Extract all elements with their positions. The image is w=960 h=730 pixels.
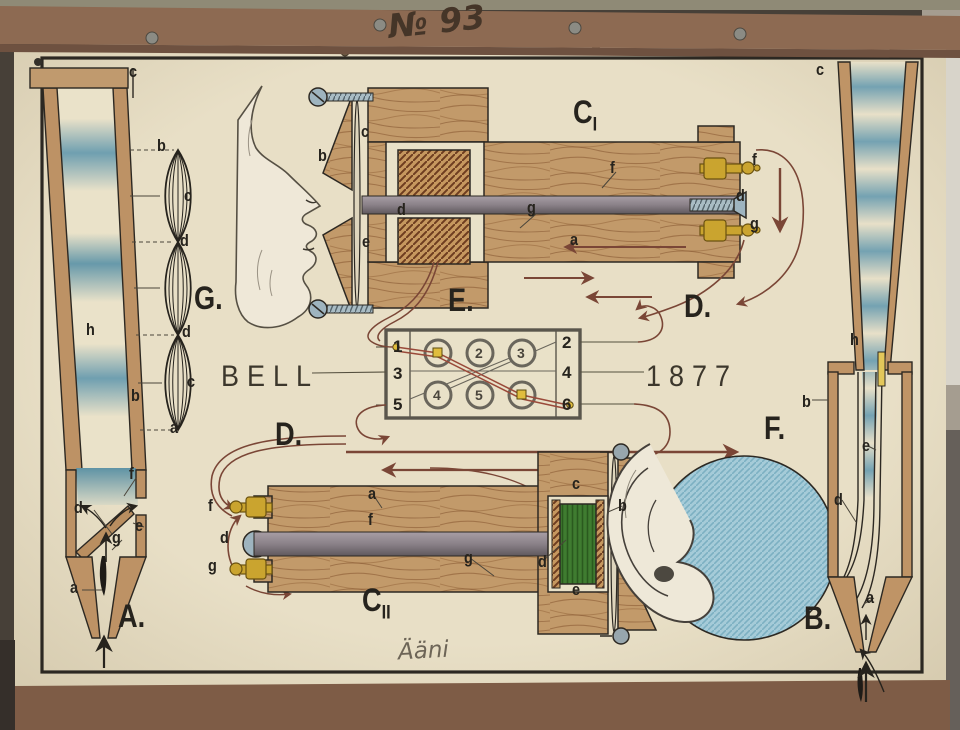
label-c1-g-wood: g xyxy=(527,198,536,218)
label-pipe-a-e: e xyxy=(135,516,143,536)
label-pipe-b-b: b xyxy=(802,392,811,412)
label-c1-a: a xyxy=(570,230,578,250)
label-c1-f-wood: f xyxy=(610,158,615,178)
label-section-d-left: D. xyxy=(275,416,302,453)
label-pipe-a-f: f xyxy=(129,464,134,484)
label-section-f: F. xyxy=(764,410,785,447)
label-rx-e: e xyxy=(572,580,580,600)
label-c2-a: a xyxy=(368,484,376,504)
terminal-4: 4 xyxy=(562,363,571,383)
label-section-g: G. xyxy=(194,280,223,317)
chart-number: № 93 xyxy=(386,0,487,46)
label-section-c2: CII xyxy=(362,582,391,624)
label-wave-d-upper: d xyxy=(180,231,189,251)
label-section-b: B. xyxy=(804,600,831,637)
label-pipe-b-c: c xyxy=(816,60,824,80)
label-pipe-a-d: d xyxy=(74,498,83,518)
terminal-2: 2 xyxy=(562,333,571,353)
label-pipe-b-h: h xyxy=(850,330,859,350)
label-tx-b: b xyxy=(318,146,327,166)
invention-year: 1877 xyxy=(646,360,738,393)
label-wave-c-lower: c xyxy=(187,372,195,392)
label-wave-c-upper: c xyxy=(184,186,192,206)
label-rx-c: c xyxy=(572,474,580,494)
label-wave-d-lower: d xyxy=(182,322,191,342)
label-tx-d: d xyxy=(397,200,406,220)
label-wave-b-bottom: b xyxy=(131,386,140,406)
label-c1-g-terminal: g xyxy=(750,214,759,234)
label-pipe-a-g: g xyxy=(112,528,121,548)
label-c1-d-screw: d xyxy=(736,186,745,206)
label-c2-g-terminal: g xyxy=(208,556,217,576)
terminal-6: 6 xyxy=(562,395,571,415)
label-c2-f-wood: f xyxy=(368,510,373,530)
label-section-e: E. xyxy=(448,282,474,319)
label-rx-b: b xyxy=(618,496,627,516)
jack-2: 2 xyxy=(475,345,483,361)
jack-5: 5 xyxy=(475,387,483,403)
label-section-c1: CI xyxy=(573,94,597,136)
label-tx-c: c xyxy=(361,122,369,142)
label-c1-f-terminal: f xyxy=(752,150,757,170)
label-c2-f-terminal: f xyxy=(208,496,213,516)
terminal-3: 3 xyxy=(393,364,402,384)
label-c2-g-wood: g xyxy=(464,548,473,568)
terminal-5: 5 xyxy=(393,395,402,415)
annotation-layer: № 93 BELL 1877 Ääni cbcdG.hdcbafdegaA.bc… xyxy=(0,0,960,730)
label-section-d-right: D. xyxy=(684,288,711,325)
label-pipe-a-c: c xyxy=(129,62,137,82)
jack-3: 3 xyxy=(517,345,525,361)
label-wave-b-top: b xyxy=(157,136,166,156)
label-wave-a: a xyxy=(170,418,178,438)
label-c2-d-core: d xyxy=(538,552,547,572)
jack-4: 4 xyxy=(433,387,441,403)
handwritten-title: Ääni xyxy=(397,637,449,666)
label-pipe-b-d: d xyxy=(834,490,843,510)
wall-chart-photo: № 93 BELL 1877 Ääni cbcdG.hdcbafdegaA.bc… xyxy=(0,0,960,730)
inventor-name: BELL xyxy=(221,360,319,393)
label-c2-d-cap: d xyxy=(220,528,229,548)
label-pipe-b-e: e xyxy=(862,436,870,456)
label-pipe-b-a: a xyxy=(866,588,874,608)
terminal-1: 1 xyxy=(393,337,402,357)
label-section-a: A. xyxy=(118,598,145,635)
label-pipe-a-h: h xyxy=(86,320,95,340)
label-tx-e: e xyxy=(362,232,370,252)
label-pipe-a-a: a xyxy=(70,578,78,598)
